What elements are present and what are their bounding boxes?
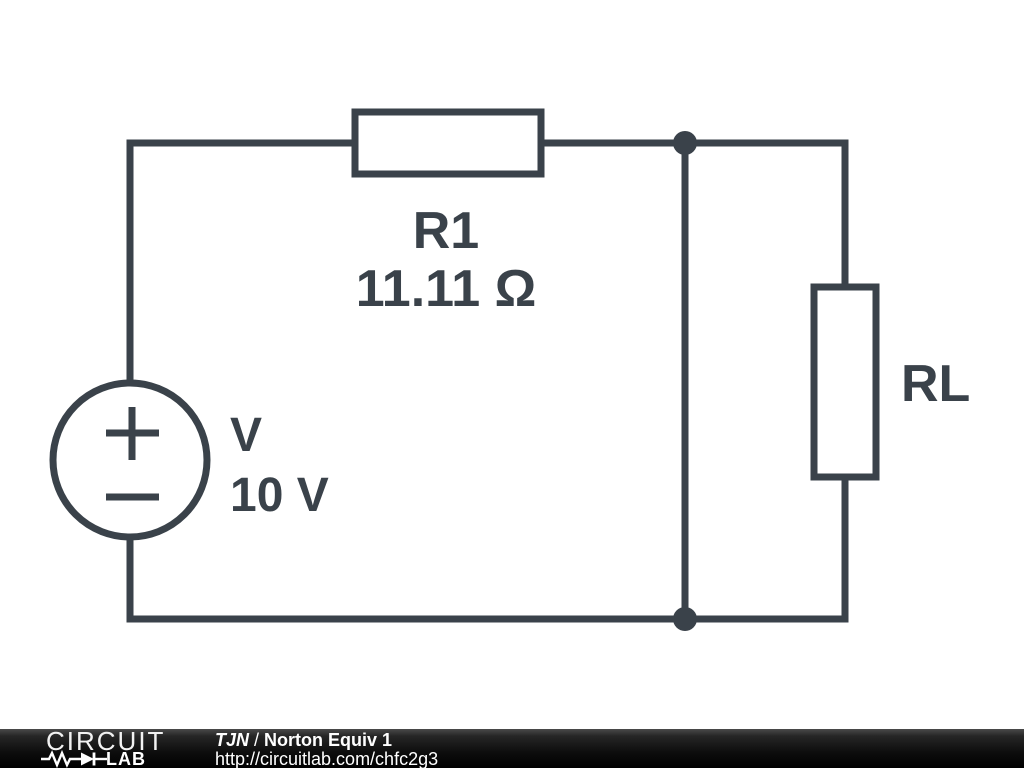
resistor-diode-icon	[41, 750, 107, 768]
logo-lab-text: LAB	[106, 751, 146, 767]
footer-bar: CIRCUIT LAB TJN/Norton Equiv 1 http://ci…	[0, 729, 1024, 768]
footer-author: TJN	[215, 730, 249, 750]
resistor-rl-label: RL	[901, 354, 970, 414]
resistor-r1-name: R1	[296, 202, 596, 260]
junction-dot-top	[673, 131, 697, 155]
junction-dot-bottom	[673, 607, 697, 631]
circuitlab-logo: CIRCUIT LAB	[41, 730, 181, 767]
resistor-r1-value: 11.11 Ω	[296, 260, 596, 318]
circuitlab-export-page: V 10 V R1 11.11 Ω RL CIRCUIT LAB TJN/Nor…	[0, 0, 1024, 768]
voltage-source-value-label: 10 V	[230, 468, 329, 523]
voltage-source-name-label: V	[230, 408, 262, 463]
footer-separator: /	[249, 730, 264, 750]
footer-title-line: TJN/Norton Equiv 1	[215, 731, 438, 750]
resistor-r1-body	[355, 112, 541, 174]
footer-meta: TJN/Norton Equiv 1 http://circuitlab.com…	[215, 731, 438, 768]
circuit-canvas	[0, 0, 1024, 729]
resistor-r1-label: R1 11.11 Ω	[296, 202, 596, 318]
circuit-schematic: V 10 V R1 11.11 Ω RL	[0, 0, 1024, 729]
footer-title: Norton Equiv 1	[264, 730, 392, 750]
footer-url[interactable]: http://circuitlab.com/chfc2g3	[215, 750, 438, 768]
resistor-rl-body	[814, 287, 876, 477]
